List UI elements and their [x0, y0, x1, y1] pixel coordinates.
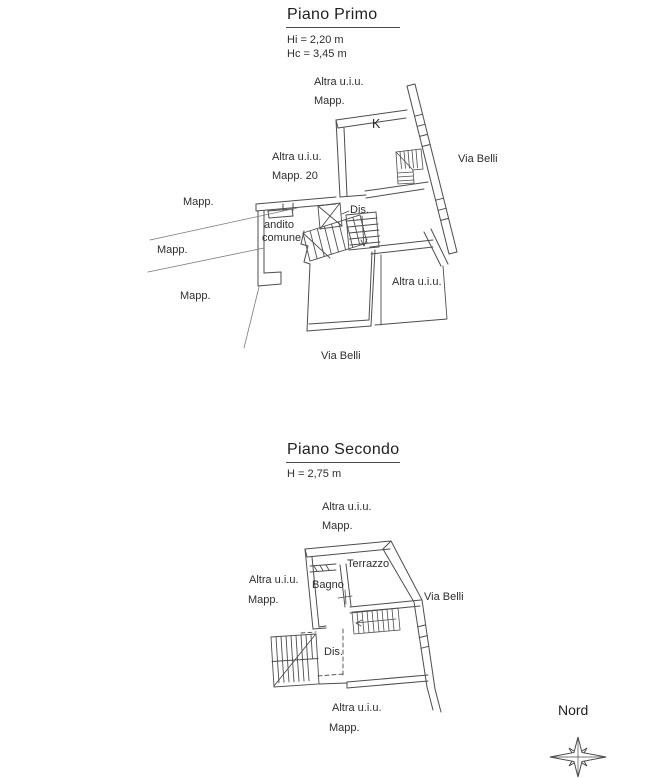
floor2-label-bottom-mapp: Mapp.	[329, 722, 360, 735]
floor1-label-left-mapp20: Mapp. 20	[272, 170, 318, 183]
floor1-height-hc: Hc = 3,45 m	[287, 48, 347, 60]
floorplan-document: Piano Primo Hi = 2,20 m Hc = 3,45 m Altr…	[0, 0, 650, 778]
floor2-label-left-altra: Altra u.i.u.	[249, 574, 299, 587]
floor2-label-left-mapp: Mapp.	[248, 594, 279, 607]
floor1-label-mapp-middle: Mapp.	[157, 244, 188, 257]
floor2-label-top-altra: Altra u.i.u.	[322, 501, 372, 514]
floor2-label-bagno: Bagno	[312, 579, 344, 592]
floor1-k-stair	[396, 149, 423, 184]
floor1-label-mapp-upper: Mapp.	[183, 196, 214, 209]
floor1-corridor-wall	[256, 197, 336, 218]
floor1-label-mapp-lower: Mapp.	[180, 290, 211, 303]
floor2-title: Piano Secondo	[287, 441, 399, 459]
floor2-height-h: H = 2,75 m	[287, 468, 341, 480]
floor2-label-terrazzo: Terrazzo	[347, 558, 389, 571]
floor2-street-wall	[383, 541, 441, 712]
floor1-label-via-belli-right: Via Belli	[458, 153, 498, 166]
floor1-title-underline	[286, 27, 400, 28]
floor1-label-room-k: K	[372, 118, 380, 131]
floor2-lower-stair	[271, 634, 319, 687]
floorplan-drawing	[0, 0, 650, 778]
floor2-label-top-mapp: Mapp.	[322, 520, 353, 533]
floor2-top-wall	[305, 541, 391, 557]
floor1-label-via-belli-bottom: Via Belli	[321, 350, 361, 363]
floor2-bagno-window	[310, 564, 336, 572]
compass-rose	[550, 737, 606, 777]
floor1-label-left-altra: Altra u.i.u.	[272, 151, 322, 164]
floor1-label-top-altra: Altra u.i.u.	[314, 76, 364, 89]
floor1-label-comune: comune	[262, 232, 301, 245]
floor1-plan	[148, 84, 457, 348]
floor1-dis-cell	[318, 203, 349, 229]
floor1-title: Piano Primo	[287, 6, 377, 24]
floor1-room-k-walls	[336, 110, 428, 198]
floor1-label-top-mapp: Mapp.	[314, 95, 345, 108]
floor1-height-hi: Hi = 2,20 m	[287, 34, 344, 46]
floor2-title-underline	[286, 462, 400, 463]
floor1-label-right-altra: Altra u.i.u.	[392, 276, 442, 289]
floor2-label-bottom-altra: Altra u.i.u.	[332, 702, 382, 715]
floor1-label-andito: andito	[264, 219, 294, 232]
floor2-label-via-belli: Via Belli	[424, 591, 464, 604]
compass-label: Nord	[558, 702, 588, 718]
floor1-label-dis: Dis.	[350, 204, 369, 217]
floor2-label-dis: Dis.	[324, 646, 343, 659]
floor1-street-wall	[407, 84, 457, 254]
